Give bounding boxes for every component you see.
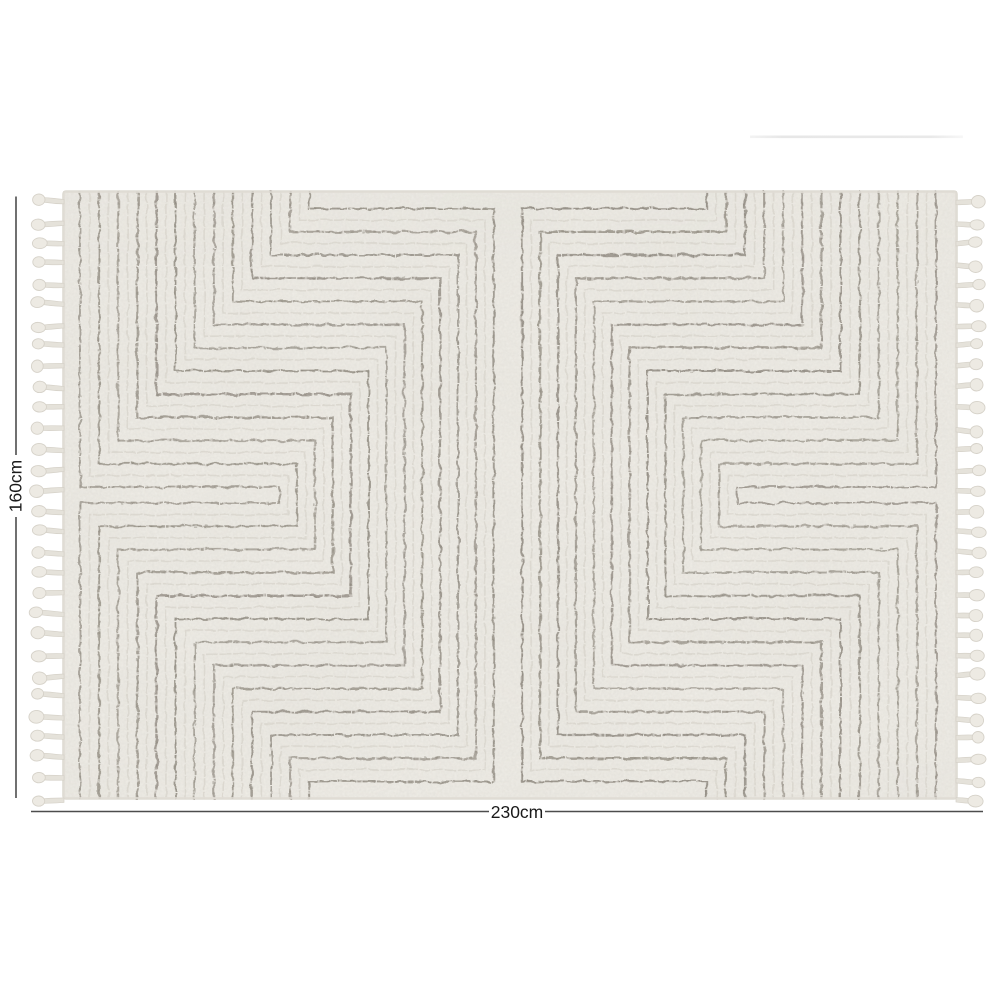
svg-text:230cm: 230cm: [491, 802, 544, 822]
svg-text:160cm: 160cm: [6, 460, 26, 513]
